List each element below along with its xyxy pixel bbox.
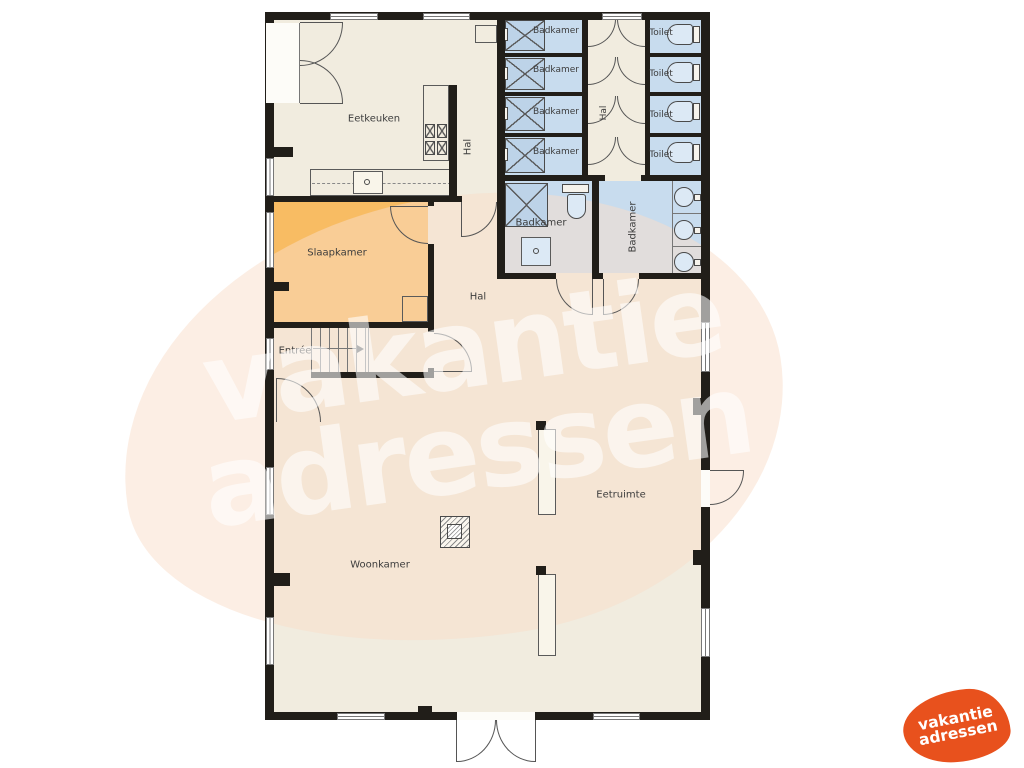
door-opening <box>457 712 535 720</box>
room-label-hal: Hal <box>599 106 609 121</box>
wall-segment <box>428 202 434 206</box>
wall-segment <box>641 175 701 181</box>
wall-pier <box>273 282 289 291</box>
room-label-slaapkamer: Slaapkamer <box>307 248 366 259</box>
wall-pier <box>273 573 290 586</box>
window <box>266 617 274 665</box>
bar-counter <box>538 574 556 656</box>
wall-segment <box>497 133 588 137</box>
wall-segment <box>497 92 588 96</box>
stove-burner-icon <box>437 141 447 155</box>
window <box>266 158 274 196</box>
door-leaf <box>592 279 593 315</box>
window <box>602 13 642 20</box>
room-label-hal: Hal <box>470 292 486 303</box>
wall-segment <box>497 175 605 181</box>
window <box>330 13 378 20</box>
toilet-tank-icon <box>693 64 700 81</box>
room-label-woonkamer: Woonkamer <box>350 560 410 571</box>
door-leaf <box>535 720 536 762</box>
room-label-eetkeuken: Eetkeuken <box>348 114 400 125</box>
wall-segment <box>645 53 701 57</box>
room-label-eetruimte: Eetruimte <box>596 490 645 501</box>
window <box>266 212 274 268</box>
room-label-badkamer: Badkamer <box>533 107 579 117</box>
room-label-badkamer: Badkamer <box>628 201 639 252</box>
sink-icon <box>674 187 694 207</box>
window <box>266 467 274 515</box>
wall-segment <box>311 372 434 378</box>
wall-segment <box>428 328 434 332</box>
room-label-hal: Hal <box>463 139 474 155</box>
door-leaf <box>434 371 472 372</box>
stairs-direction-line <box>313 348 358 349</box>
door-leaf <box>461 202 462 237</box>
bar-counter <box>538 429 556 515</box>
toilet-icon <box>567 194 586 219</box>
stairs-edge <box>368 326 369 372</box>
counter-edge <box>672 246 701 247</box>
wall-segment <box>449 85 457 202</box>
wall-pier <box>536 566 546 575</box>
door-leaf <box>276 378 277 422</box>
vakantieadressen-logo-text: vakantie adressen <box>915 704 999 748</box>
window <box>337 713 385 720</box>
room-label-toilet: Toilet <box>649 69 673 79</box>
room-label-toilet: Toilet <box>649 110 673 120</box>
wall-segment <box>639 273 701 279</box>
counter-edge <box>672 181 673 273</box>
stair-tread <box>320 326 321 372</box>
sink-icon <box>674 220 694 240</box>
door-leaf <box>456 720 457 762</box>
door-opening <box>266 23 274 103</box>
wall-segment <box>592 273 603 279</box>
wall-segment <box>265 322 434 328</box>
door-leaf <box>390 206 428 207</box>
window <box>593 713 640 720</box>
wall-segment <box>582 12 588 181</box>
stair-tread <box>329 326 330 372</box>
stair-tread <box>338 326 339 372</box>
sink-icon <box>674 252 694 272</box>
window <box>701 322 710 372</box>
faucet-icon <box>694 227 701 234</box>
stove-burner-icon <box>437 124 447 138</box>
wall-segment <box>645 92 701 96</box>
wall-segment <box>428 244 434 328</box>
toilet-tank-icon <box>693 26 700 43</box>
sink-drain-icon <box>533 248 539 254</box>
toilet-tank-icon <box>693 144 700 161</box>
door-arc <box>457 720 496 762</box>
stair-tread <box>365 326 366 372</box>
room-label-badkamer: Badkamer <box>515 218 566 229</box>
toilet-tank-icon <box>562 184 589 193</box>
door-panel-recess <box>274 23 300 103</box>
wall-segment <box>592 181 599 273</box>
counter-edge <box>672 213 701 214</box>
wall-pier <box>418 706 432 712</box>
closet <box>402 296 428 322</box>
wall-segment <box>497 273 556 279</box>
vakantieadressen-logo: vakantie adressen <box>900 685 1013 766</box>
stove-burner-icon <box>425 124 435 138</box>
wall-pier <box>536 421 546 430</box>
door-leaf <box>300 103 343 104</box>
wall-pier <box>273 147 293 157</box>
toilet-tank-icon <box>693 103 700 120</box>
window <box>423 13 470 20</box>
room-label-badkamer: Badkamer <box>533 147 579 157</box>
stair-tread <box>347 326 348 372</box>
door-arc <box>496 720 535 762</box>
wall-pier <box>693 550 702 565</box>
room-label-entre: Entrée <box>279 346 312 357</box>
room-label-toilet: Toilet <box>649 150 673 160</box>
window <box>266 338 274 370</box>
faucet-icon <box>694 259 701 266</box>
stove-burner-icon <box>425 141 435 155</box>
door-leaf <box>710 470 744 471</box>
fireplace-inner-icon <box>447 524 462 539</box>
door-opening <box>701 470 710 507</box>
door-leaf <box>300 22 343 23</box>
faucet-icon <box>694 194 701 201</box>
room-label-toilet: Toilet <box>649 28 673 38</box>
wall-segment <box>645 133 701 137</box>
wall-pier <box>693 398 702 415</box>
door-leaf <box>603 279 604 315</box>
stairs-arrow-icon <box>357 345 364 353</box>
floorplan-canvas: EetkeukenHalBadkamerBadkamerBadkamerBadk… <box>0 0 1024 768</box>
kitchen-cabinet <box>475 25 497 43</box>
window <box>701 608 710 657</box>
faucet-icon <box>364 179 370 185</box>
room-label-badkamer: Badkamer <box>533 26 579 36</box>
wall-segment <box>497 53 588 57</box>
room-label-badkamer: Badkamer <box>533 65 579 75</box>
